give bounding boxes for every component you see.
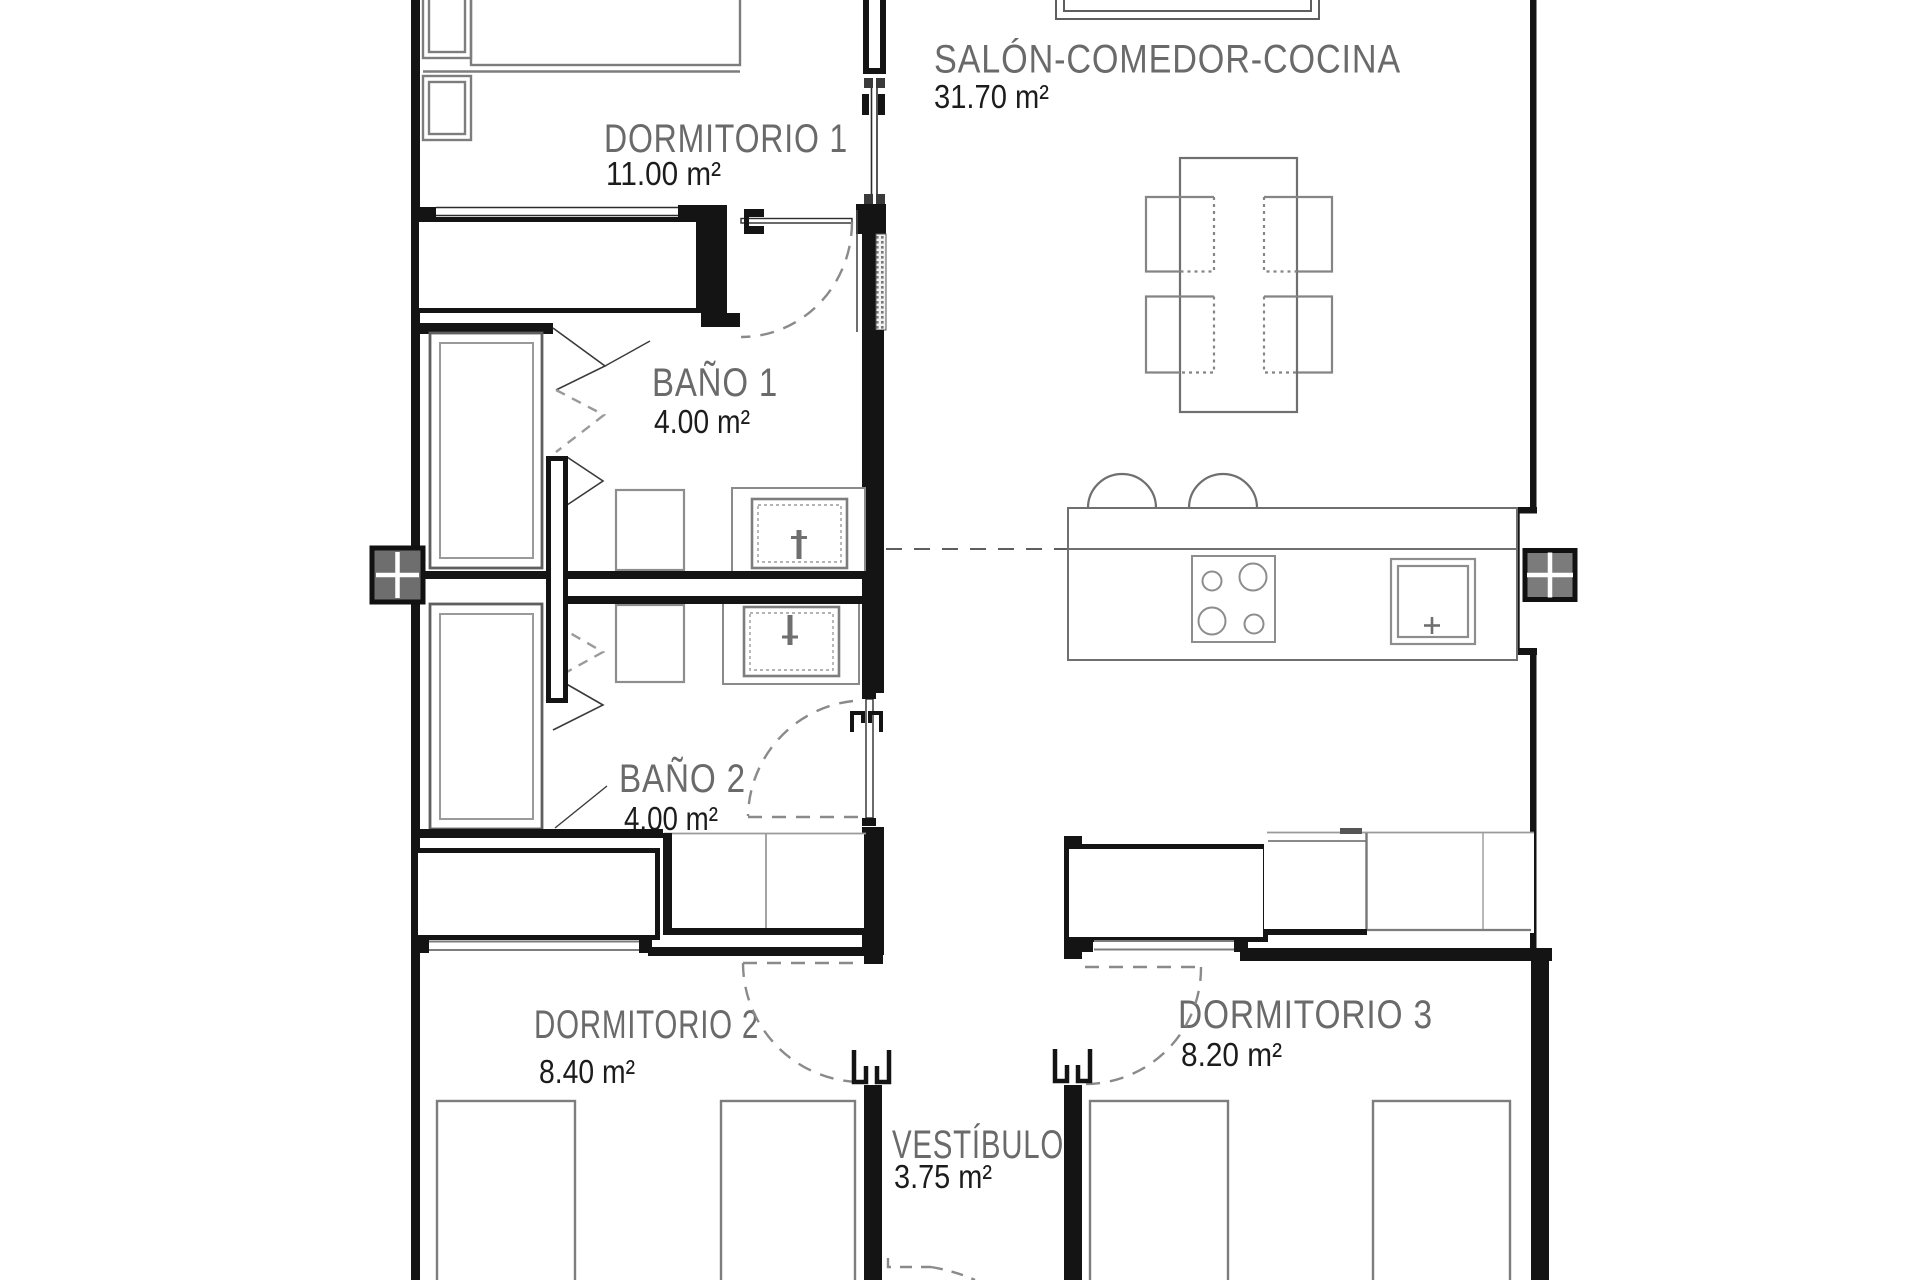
svg-text:BAÑO 1: BAÑO 1 <box>652 360 778 405</box>
svg-text:8.40 m²: 8.40 m² <box>539 1053 635 1090</box>
svg-text:8.20 m²: 8.20 m² <box>1181 1036 1282 1073</box>
svg-text:4.00 m²: 4.00 m² <box>654 403 750 440</box>
svg-text:3.75 m²: 3.75 m² <box>894 1158 992 1195</box>
svg-text:BAÑO 2: BAÑO 2 <box>619 756 746 801</box>
svg-text:11.00 m²: 11.00 m² <box>606 155 721 192</box>
svg-text:31.70 m²: 31.70 m² <box>934 78 1049 115</box>
svg-text:SALÓN-COMEDOR-COCINA: SALÓN-COMEDOR-COCINA <box>934 37 1401 82</box>
svg-text:DORMITORIO 2: DORMITORIO 2 <box>534 1003 759 1047</box>
svg-text:DORMITORIO 3: DORMITORIO 3 <box>1178 993 1433 1037</box>
